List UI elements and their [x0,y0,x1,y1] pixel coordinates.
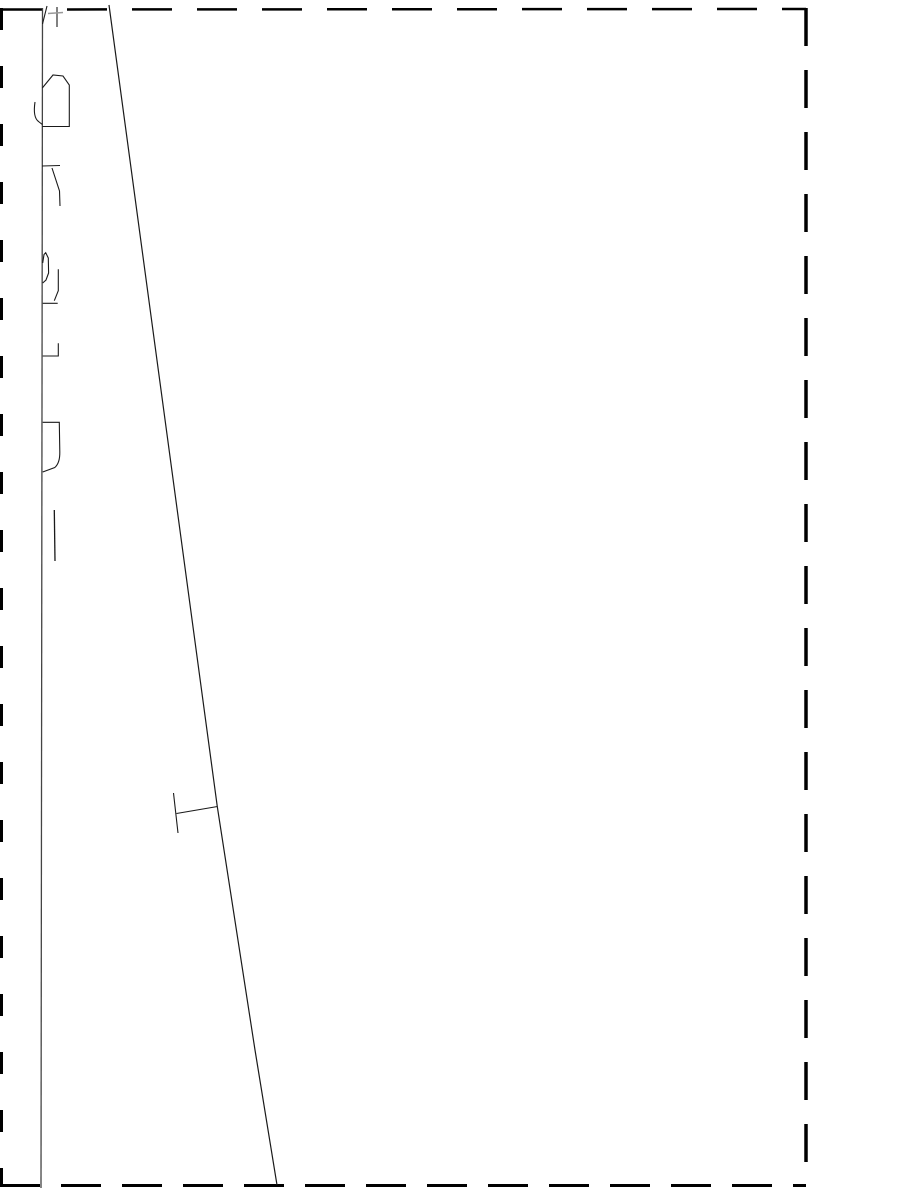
rotated-text-glyph-4-loop [43,253,49,283]
data-line [109,5,277,1185]
rotated-text-glyph-3-bar [42,166,60,167]
plot-page [0,0,918,1188]
rotated-text-glyph-1-crossbar [48,13,63,14]
page-border-top [2,9,806,10]
rotated-text-glyph-4-stroke [54,269,58,300]
axis-line [41,8,43,1188]
rotated-text-glyph-7-bar [54,510,55,561]
rotated-text-glyph-6-box [43,422,60,472]
rotated-text-glyph-2-hook [34,102,42,125]
rotated-text-glyph-5-corner [43,343,59,356]
plot-drawing [0,0,918,1188]
rotated-text-glyph-1-slash [43,6,48,24]
rotated-text-glyph-2-bowl [42,75,69,127]
rotated-text-glyph-3-leg [52,168,60,206]
errorbar-whisker [177,807,218,814]
